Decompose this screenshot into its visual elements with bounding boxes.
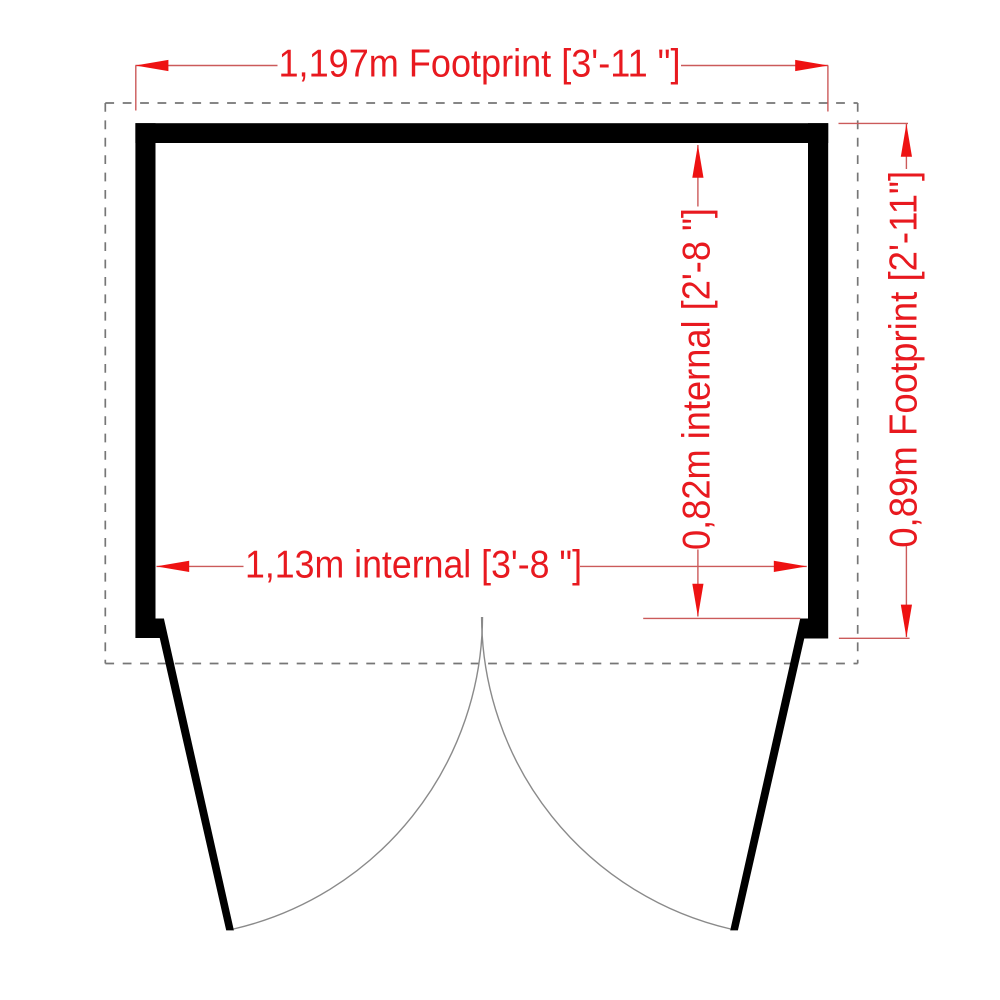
svg-text:0,89m Footprint [2'-11"]: 0,89m Footprint [2'-11"] bbox=[883, 171, 926, 548]
svg-text:1,13m internal [3'-8 "]: 1,13m internal [3'-8 "] bbox=[245, 544, 582, 587]
svg-text:0,82m internal [2'-8 "]: 0,82m internal [2'-8 "] bbox=[675, 208, 718, 550]
svg-text:1,197m Footprint [3'-11 "]: 1,197m Footprint [3'-11 "] bbox=[279, 42, 681, 85]
